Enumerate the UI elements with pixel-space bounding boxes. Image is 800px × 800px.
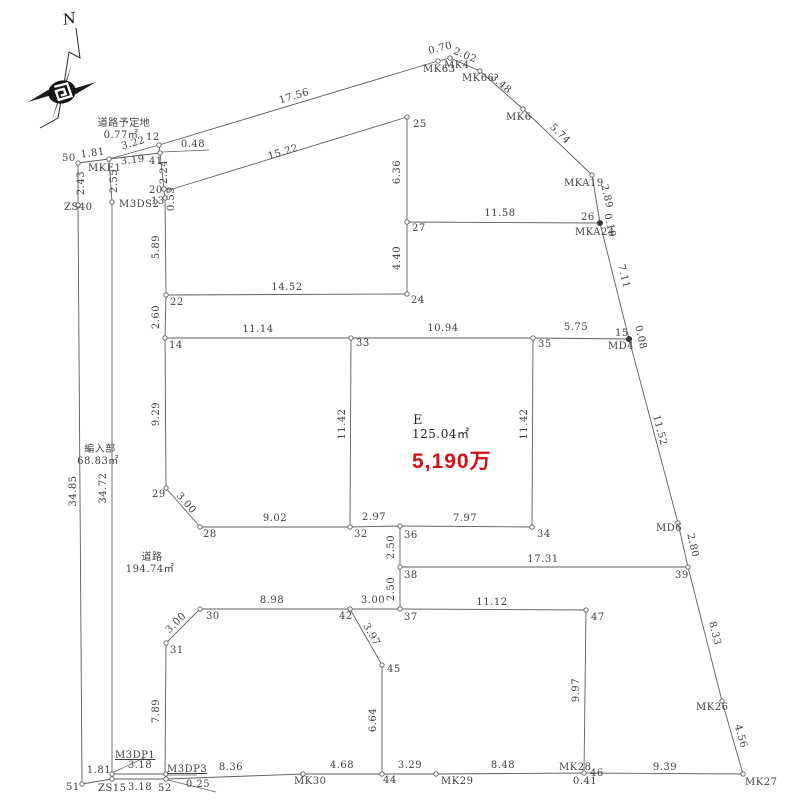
survey-text: 11.42 bbox=[519, 408, 530, 439]
boundary-segment bbox=[350, 338, 351, 527]
boundary-segment bbox=[350, 526, 400, 527]
survey-text: 34 bbox=[537, 529, 551, 540]
survey-drawing-svg: N 道路予定地0.77㎡編入部68.83㎡道路194.74㎡E125.04㎡5,… bbox=[0, 0, 800, 800]
boundary-segment bbox=[407, 222, 600, 223]
survey-text: 3.00 bbox=[361, 595, 385, 606]
survey-text: 11.42 bbox=[337, 408, 348, 439]
survey-text: 9.29 bbox=[151, 402, 162, 426]
survey-text: 29 bbox=[152, 489, 166, 500]
survey-text: 4.68 bbox=[330, 760, 354, 771]
survey-text: 68.83㎡ bbox=[77, 455, 119, 467]
survey-text: 14 bbox=[169, 340, 183, 351]
survey-text: 41 bbox=[149, 156, 163, 167]
survey-text: 24 bbox=[411, 295, 425, 306]
survey-text: 0.08 bbox=[632, 324, 648, 350]
survey-text: 34.72 bbox=[98, 472, 109, 503]
survey-text: 8.33 bbox=[706, 620, 723, 646]
survey-point bbox=[198, 525, 202, 529]
survey-point bbox=[76, 161, 80, 165]
survey-text: MKA19 bbox=[564, 178, 604, 189]
survey-text: 道路予定地 bbox=[98, 116, 151, 129]
survey-text: MK30 bbox=[294, 776, 326, 787]
boundary-segment bbox=[165, 295, 166, 338]
survey-text: MK4 bbox=[444, 60, 470, 71]
survey-text: 33 bbox=[356, 338, 370, 349]
boundary-lines bbox=[78, 58, 743, 784]
survey-point bbox=[349, 336, 353, 340]
survey-text: 5.74 bbox=[547, 122, 572, 147]
survey-text: 8.98 bbox=[260, 595, 284, 606]
survey-text: 32 bbox=[354, 529, 368, 540]
survey-text: 0.48 bbox=[181, 139, 205, 150]
survey-labels: 道路予定地0.77㎡編入部68.83㎡道路194.74㎡E125.04㎡5,19… bbox=[62, 40, 777, 794]
survey-point bbox=[80, 782, 84, 786]
survey-text: 5.89 bbox=[151, 235, 162, 259]
survey-text: 7.89 bbox=[151, 699, 162, 723]
survey-text: 15 bbox=[615, 328, 629, 339]
survey-text: 125.04㎡ bbox=[412, 427, 470, 441]
survey-point bbox=[164, 293, 168, 297]
survey-text: 52 bbox=[158, 783, 172, 794]
survey-text: 11.14 bbox=[242, 324, 273, 335]
compass-north-label: N bbox=[60, 8, 78, 29]
survey-point bbox=[521, 107, 525, 111]
survey-text: 45 bbox=[387, 664, 401, 675]
survey-text: 11.58 bbox=[484, 208, 515, 219]
survey-text: 42 bbox=[339, 611, 353, 622]
survey-text: 9.39 bbox=[653, 762, 677, 773]
survey-text: 20 bbox=[149, 185, 163, 196]
leader-lines bbox=[112, 150, 216, 792]
survey-point bbox=[405, 292, 409, 296]
survey-point bbox=[107, 157, 111, 161]
survey-text: 47 bbox=[591, 612, 605, 623]
survey-map-page: N 道路予定地0.77㎡編入部68.83㎡道路194.74㎡E125.04㎡5,… bbox=[0, 0, 800, 800]
survey-text: ZS15 bbox=[98, 783, 127, 794]
survey-text: 38 bbox=[404, 570, 418, 581]
survey-text: 22 bbox=[170, 297, 184, 308]
survey-text: MD6 bbox=[656, 523, 682, 534]
survey-text: 9.02 bbox=[263, 513, 287, 524]
survey-text: 2.97 bbox=[362, 512, 386, 523]
survey-text: 17.56 bbox=[278, 87, 311, 107]
survey-text: 0.70 bbox=[427, 40, 453, 57]
survey-text: MK26 bbox=[696, 702, 728, 713]
boundary-segment bbox=[165, 338, 166, 488]
survey-text: MK27 bbox=[745, 777, 777, 788]
survey-point bbox=[158, 151, 162, 155]
boundary-segment bbox=[584, 773, 743, 774]
survey-text: 2.50 bbox=[386, 535, 397, 559]
survey-text: 30 bbox=[206, 611, 220, 622]
survey-text: 3.00 bbox=[174, 491, 198, 517]
survey-point bbox=[164, 641, 168, 645]
survey-text: 3.18 bbox=[128, 782, 152, 793]
survey-point bbox=[110, 777, 114, 781]
survey-point bbox=[198, 607, 202, 611]
survey-point bbox=[590, 173, 594, 177]
survey-point bbox=[530, 525, 534, 529]
boundary-segment bbox=[436, 773, 584, 774]
survey-text: MD4 bbox=[608, 341, 634, 352]
survey-text: 46 bbox=[590, 768, 604, 779]
survey-text: 2.80 bbox=[684, 532, 700, 558]
survey-point bbox=[434, 772, 438, 776]
survey-text: 1.81 bbox=[87, 765, 111, 776]
survey-text: 6.36 bbox=[392, 160, 403, 184]
survey-point bbox=[163, 336, 167, 340]
survey-text: 44 bbox=[383, 775, 397, 786]
survey-text: MK66 bbox=[462, 73, 494, 84]
survey-point bbox=[398, 607, 402, 611]
survey-point bbox=[405, 115, 409, 119]
survey-point bbox=[398, 565, 402, 569]
survey-text: MK28 bbox=[559, 762, 591, 773]
survey-text: 3.00 bbox=[164, 611, 189, 636]
survey-text: 5.75 bbox=[564, 322, 588, 333]
survey-text: MKA24 bbox=[575, 227, 615, 238]
survey-text: 0.53 bbox=[166, 187, 177, 211]
survey-point bbox=[348, 525, 352, 529]
survey-text: 14.52 bbox=[271, 282, 302, 293]
survey-text: 50 bbox=[62, 153, 76, 164]
survey-text: 7.97 bbox=[453, 513, 477, 524]
survey-point bbox=[164, 777, 168, 781]
survey-point bbox=[584, 608, 588, 612]
boundary-segment bbox=[159, 61, 438, 145]
boundary-segment bbox=[523, 109, 592, 175]
survey-text: 8.36 bbox=[219, 762, 243, 773]
survey-point bbox=[110, 200, 114, 204]
boundary-segment bbox=[165, 198, 166, 295]
survey-text: 13 bbox=[151, 196, 165, 207]
survey-text: 28 bbox=[203, 529, 217, 540]
survey-text: 27 bbox=[412, 223, 426, 234]
survey-point bbox=[398, 524, 402, 528]
survey-text: 8.48 bbox=[491, 760, 515, 771]
survey-point bbox=[380, 663, 384, 667]
survey-text: 6.64 bbox=[368, 708, 379, 732]
boundary-segment bbox=[166, 294, 407, 295]
survey-text: 10.94 bbox=[427, 323, 458, 334]
boundary-segment bbox=[584, 610, 586, 773]
survey-text: 編入部 bbox=[84, 442, 116, 455]
survey-text: 3.97 bbox=[360, 621, 382, 648]
compass: N bbox=[28, 8, 96, 128]
survey-point bbox=[531, 336, 535, 340]
survey-text: M3DP1 bbox=[115, 750, 155, 761]
survey-text: 39 bbox=[675, 570, 689, 581]
boundary-segment bbox=[532, 338, 533, 527]
survey-points bbox=[76, 56, 745, 786]
survey-text: MK29 bbox=[441, 776, 473, 787]
survey-text: M3DP3 bbox=[167, 764, 207, 775]
survey-text: 26 bbox=[581, 212, 595, 223]
leader-line bbox=[162, 150, 209, 152]
compass-arrow-shaft bbox=[64, 28, 80, 84]
survey-text: 11.12 bbox=[476, 597, 507, 608]
survey-text: MK6 bbox=[506, 112, 532, 123]
survey-text: 0.25 bbox=[186, 779, 210, 790]
survey-text: 36 bbox=[404, 530, 418, 541]
compass-rose-disc bbox=[46, 77, 79, 106]
survey-text: 37 bbox=[404, 612, 418, 623]
survey-point bbox=[405, 220, 409, 224]
survey-text: 31 bbox=[170, 645, 184, 656]
survey-text: 17.31 bbox=[527, 554, 558, 565]
survey-text: 194.74㎡ bbox=[126, 563, 175, 575]
survey-text: 3.19 bbox=[120, 154, 145, 168]
survey-text: 51 bbox=[66, 782, 80, 793]
survey-point bbox=[436, 59, 440, 63]
boundary-segment bbox=[165, 643, 166, 774]
survey-text: 2.43 bbox=[76, 171, 87, 195]
survey-text: 2.60 bbox=[151, 305, 162, 329]
survey-text: E bbox=[413, 413, 423, 428]
survey-text: 2.50 bbox=[386, 577, 397, 601]
price-label: 5,190万 bbox=[412, 450, 492, 473]
survey-point bbox=[157, 143, 161, 147]
survey-point-filled bbox=[597, 220, 602, 225]
survey-point bbox=[741, 772, 745, 776]
survey-text: 15.22 bbox=[267, 143, 300, 163]
survey-text: 3.18 bbox=[128, 760, 152, 771]
survey-point bbox=[686, 565, 690, 569]
survey-text: 34.85 bbox=[68, 475, 79, 506]
survey-text: 9.97 bbox=[571, 678, 582, 702]
survey-text: 35 bbox=[538, 339, 552, 350]
survey-text: 4.40 bbox=[392, 246, 403, 270]
boundary-segment bbox=[400, 609, 586, 610]
survey-text: 12 bbox=[146, 132, 160, 143]
survey-text: 1.81 bbox=[80, 147, 105, 161]
survey-text: ZS40 bbox=[64, 202, 93, 213]
survey-text: 25 bbox=[413, 119, 427, 130]
survey-text: 道路 bbox=[142, 550, 163, 563]
survey-text: MKE1 bbox=[88, 163, 121, 174]
survey-text: 3.29 bbox=[398, 760, 422, 771]
boundary-segment bbox=[400, 526, 532, 527]
survey-text: 7.11 bbox=[615, 263, 632, 289]
boundary-segment bbox=[629, 339, 678, 523]
